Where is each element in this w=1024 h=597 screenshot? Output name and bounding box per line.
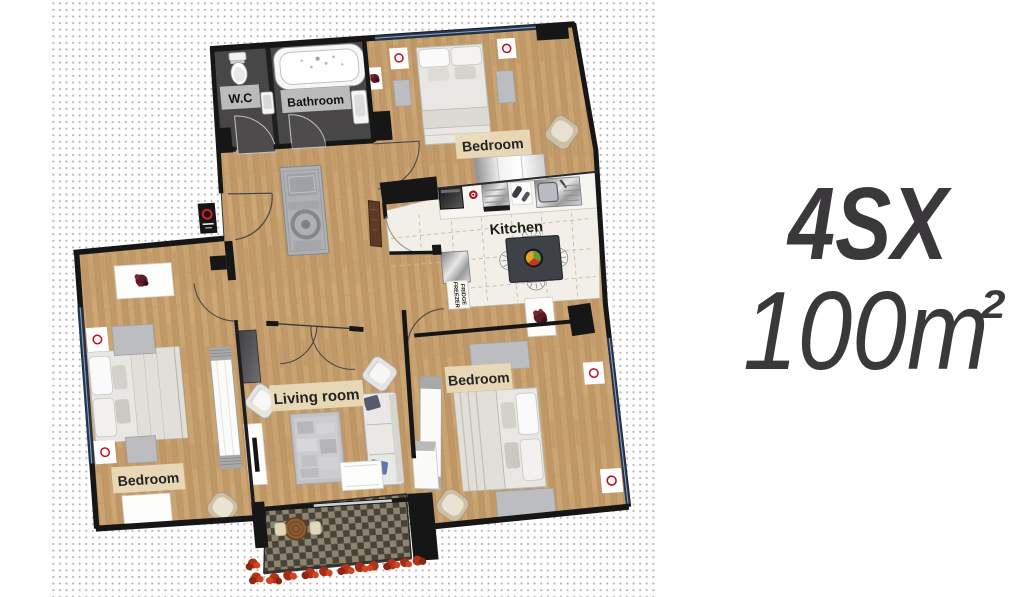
svg-text:Kitchen: Kitchen: [489, 219, 544, 238]
svg-text:FRIDGEFREEZER: FRIDGEFREEZER: [451, 281, 466, 308]
svg-text:W.C: W.C: [228, 91, 253, 106]
